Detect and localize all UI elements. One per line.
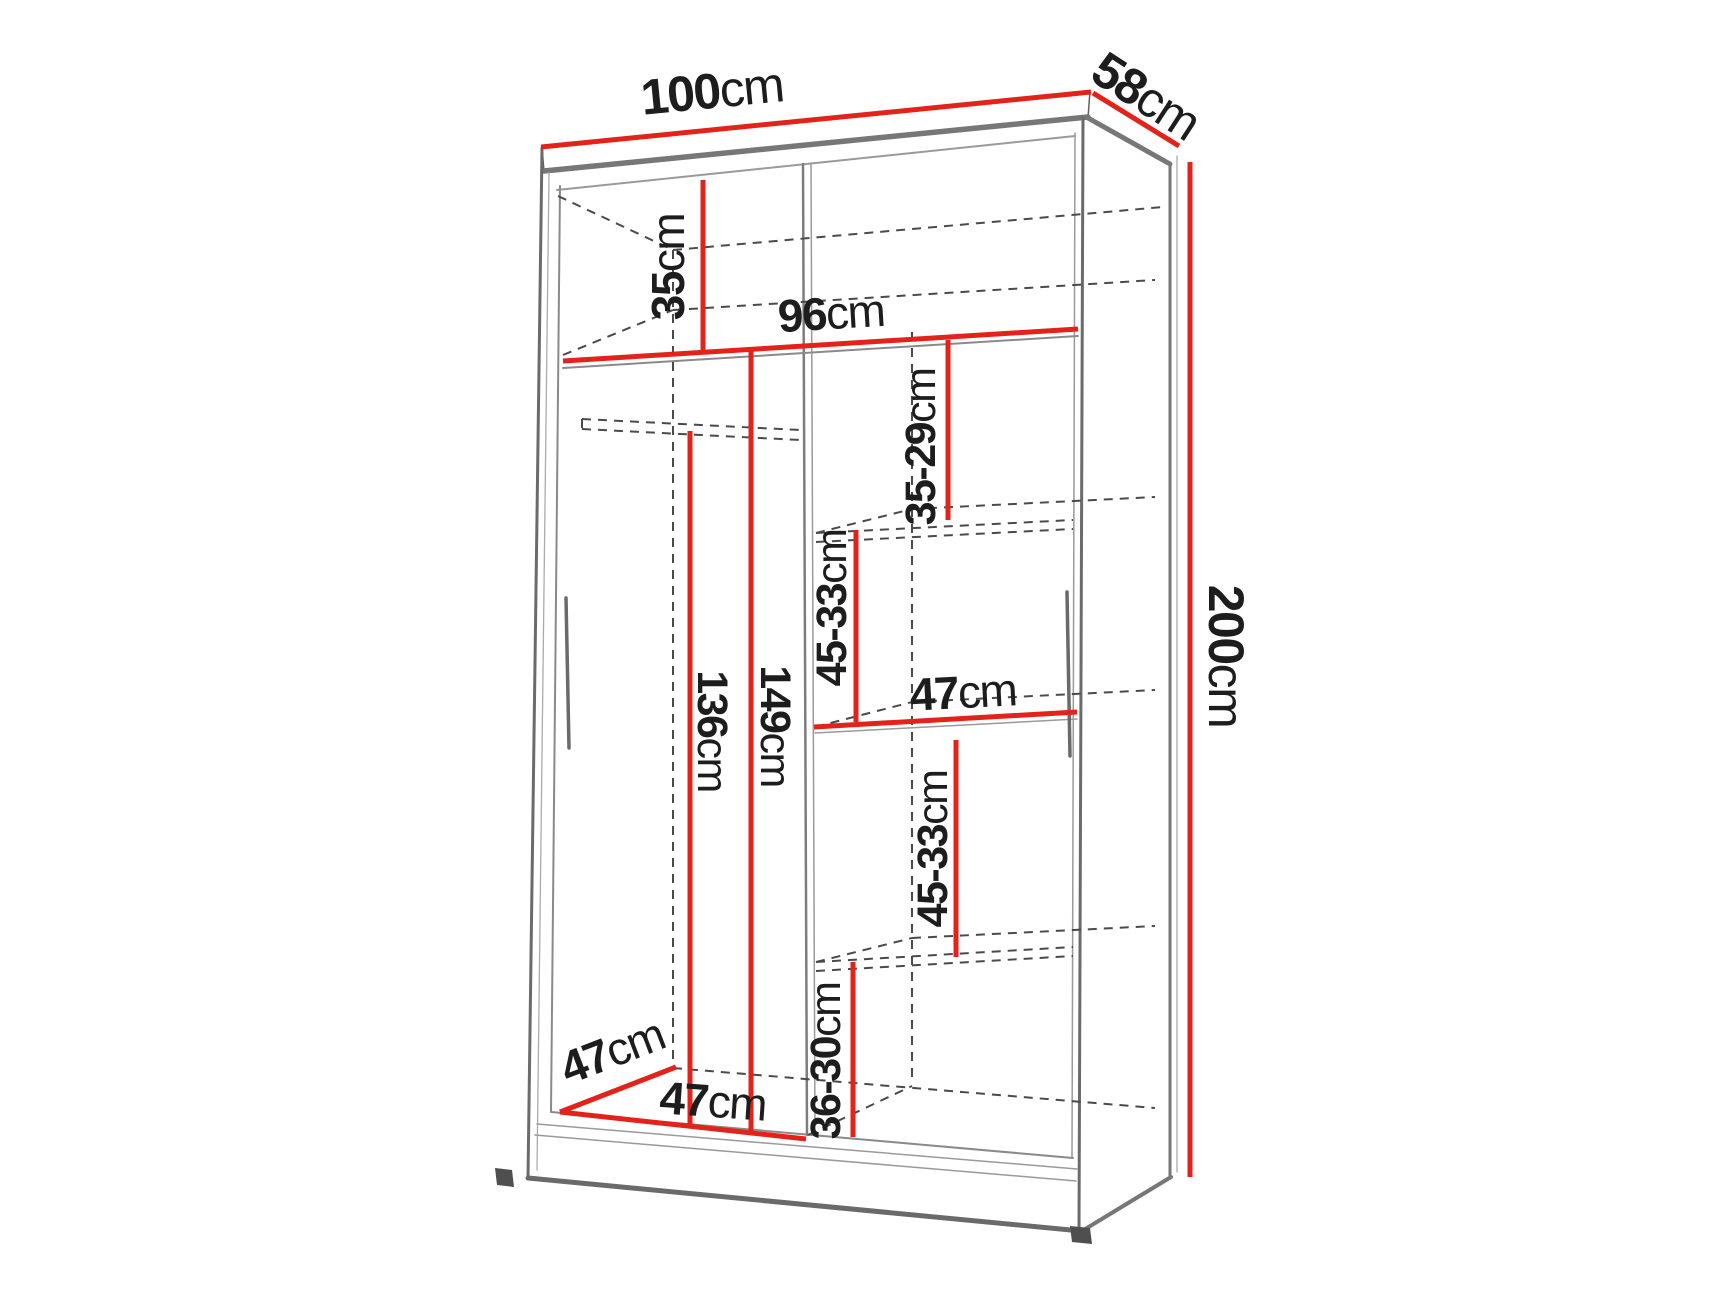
label-upper-gap: 35-29cm (897, 369, 945, 526)
top-board-band (542, 91, 1090, 172)
right-wall-inner-edge (1072, 133, 1075, 1157)
left-foot (495, 1168, 514, 1187)
ceiling-back-edge (673, 207, 1163, 250)
label-left-section-height: 149cm (751, 665, 799, 787)
label-overall-width: 100cm (638, 56, 785, 125)
side-bottom-edge (1082, 1177, 1171, 1231)
top-shelf-under-edge (563, 336, 1078, 368)
label-overall-depth: 58cm (1082, 41, 1210, 151)
label-gap-above-mid-shelf: 45-33cm (808, 530, 856, 687)
dimension-labels: 100cm 58cm 200cm 35cm 96cm 35-29cm 45-33… (553, 41, 1254, 1140)
left-door-handle (566, 598, 569, 748)
right-door-handle (1067, 592, 1070, 756)
label-gap-below-mid-shelf: 45-33cm (909, 771, 957, 928)
label-interior-depth: 47cm (553, 1008, 671, 1095)
hanging-rail-top (582, 419, 800, 430)
plinth-mid-line (535, 1135, 1076, 1181)
shelf4-front-a (816, 947, 1073, 962)
left-outer-edge (528, 148, 542, 1178)
label-interior-width: 96cm (776, 284, 885, 342)
label-hanging-space-height: 136cm (688, 670, 736, 792)
diagram-canvas: 100cm 58cm 200cm 35cm 96cm 35-29cm 45-33… (0, 0, 1726, 1295)
label-left-section-width: 47cm (658, 1071, 768, 1130)
left-wall-inner-edge (551, 186, 560, 1112)
right-foot (1070, 1226, 1092, 1244)
label-overall-height: 200cm (1198, 585, 1254, 728)
wardrobe-dimension-diagram: 100cm 58cm 200cm 35cm 96cm 35-29cm 45-33… (0, 0, 1726, 1295)
bottom-front-edge (528, 1178, 1081, 1231)
label-bottom-gap: 36-30cm (802, 983, 850, 1140)
label-right-shelf-width: 47cm (908, 663, 1017, 721)
label-top-shelf-height: 35cm (642, 214, 694, 321)
